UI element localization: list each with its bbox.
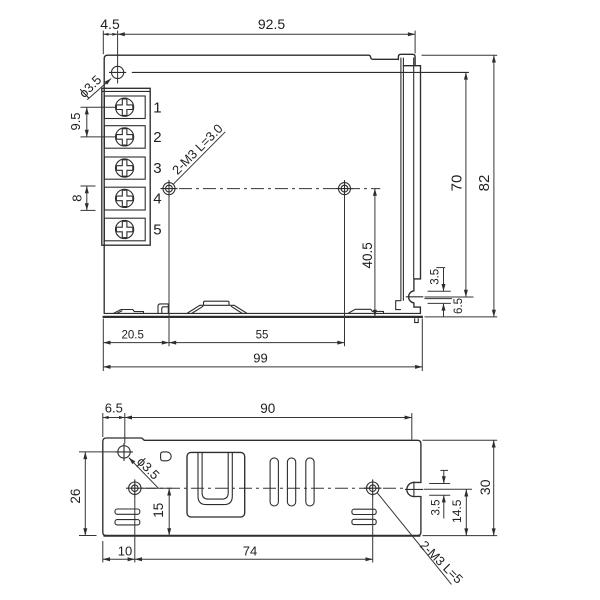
svg-text:ϕ3.5: ϕ3.5 bbox=[76, 72, 105, 101]
svg-text:1: 1 bbox=[153, 99, 161, 116]
svg-text:4: 4 bbox=[153, 191, 161, 208]
svg-text:90: 90 bbox=[260, 401, 275, 416]
svg-text:82: 82 bbox=[476, 175, 493, 192]
svg-text:4.5: 4.5 bbox=[100, 16, 120, 32]
svg-text:3: 3 bbox=[153, 160, 161, 177]
svg-text:70: 70 bbox=[449, 175, 466, 192]
svg-text:6.5: 6.5 bbox=[453, 298, 465, 314]
svg-text:9.5: 9.5 bbox=[68, 112, 83, 130]
svg-text:40.5: 40.5 bbox=[360, 242, 375, 268]
svg-text:3.5: 3.5 bbox=[430, 269, 442, 285]
svg-text:8: 8 bbox=[70, 195, 85, 202]
svg-text:3.5: 3.5 bbox=[430, 500, 442, 516]
svg-text:15: 15 bbox=[151, 503, 166, 518]
svg-text:20.5: 20.5 bbox=[122, 329, 144, 341]
svg-text:10: 10 bbox=[118, 543, 132, 558]
svg-text:2-M3 L=3.0: 2-M3 L=3.0 bbox=[169, 121, 226, 178]
svg-text:74: 74 bbox=[243, 543, 257, 558]
svg-text:92.5: 92.5 bbox=[258, 16, 285, 32]
svg-text:14.5: 14.5 bbox=[450, 499, 464, 523]
svg-text:5: 5 bbox=[153, 222, 161, 239]
svg-text:55: 55 bbox=[256, 329, 269, 341]
svg-text:30: 30 bbox=[477, 479, 493, 495]
svg-text:26: 26 bbox=[68, 489, 83, 504]
svg-text:2-M3 L=5: 2-M3 L=5 bbox=[417, 537, 466, 586]
svg-text:2: 2 bbox=[153, 129, 161, 146]
svg-text:99: 99 bbox=[253, 351, 267, 366]
svg-text:6.5: 6.5 bbox=[105, 401, 123, 416]
svg-text:ϕ3.5: ϕ3.5 bbox=[134, 454, 163, 483]
